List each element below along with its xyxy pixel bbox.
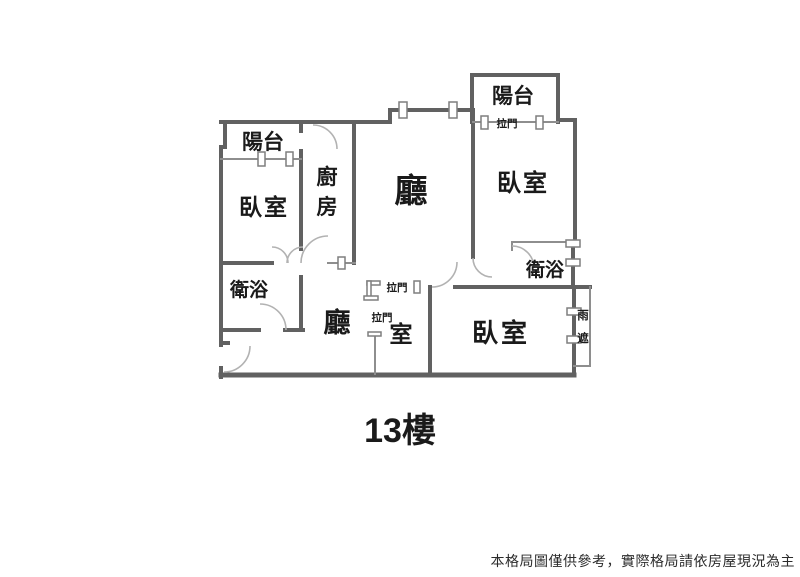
floor-plan-drawing: 陽台 臥室 廚房 廳 陽台 拉門 臥室 衛浴 衛浴 廳 拉門 拉門 室 臥室 雨… xyxy=(0,0,800,577)
door-jamb-marker xyxy=(536,116,543,129)
window-marker xyxy=(286,152,293,166)
window-marker xyxy=(566,259,580,266)
door-jamb-marker xyxy=(338,257,345,269)
floor-number-title: 13樓 xyxy=(364,412,436,450)
sliding-door-label-balcony: 拉門 xyxy=(497,117,518,130)
room-label-bedroom-bottom: 臥室 xyxy=(472,318,530,348)
room-label-bath-right: 衛浴 xyxy=(525,258,565,281)
room-label-balcony-right: 陽台 xyxy=(492,84,534,108)
window-marker xyxy=(258,152,265,166)
door-jamb-marker xyxy=(368,332,381,336)
room-label-hall-lower: 廳 xyxy=(324,307,351,338)
window-symbols xyxy=(258,102,581,343)
room-label-bath-left: 衛浴 xyxy=(229,278,269,301)
room-label-bedroom-left: 臥室 xyxy=(239,194,289,220)
sliding-door-label-hall: 拉門 xyxy=(387,281,408,294)
room-label-bedroom-right: 臥室 xyxy=(497,169,549,197)
room-label-kitchen: 廚房 xyxy=(317,165,338,219)
room-label-multi-room: 室 xyxy=(390,321,413,347)
room-label-living-hall: 廳 xyxy=(395,172,428,209)
window-marker xyxy=(449,102,457,118)
room-label-rain-cover: 雨遮 xyxy=(577,309,589,345)
disclaimer-text: 本格局圖僅供參考，實際格局請依房屋現況為主 xyxy=(491,551,796,571)
door-jamb-marker xyxy=(414,281,420,293)
door-pocket-marker xyxy=(364,296,378,300)
room-label-balcony-left: 陽台 xyxy=(242,130,284,154)
window-marker xyxy=(399,102,407,118)
floor-plan-page: 陽台 臥室 廚房 廳 陽台 拉門 臥室 衛浴 衛浴 廳 拉門 拉門 室 臥室 雨… xyxy=(0,0,800,577)
door-jamb-marker xyxy=(481,116,488,129)
window-marker xyxy=(566,240,580,247)
